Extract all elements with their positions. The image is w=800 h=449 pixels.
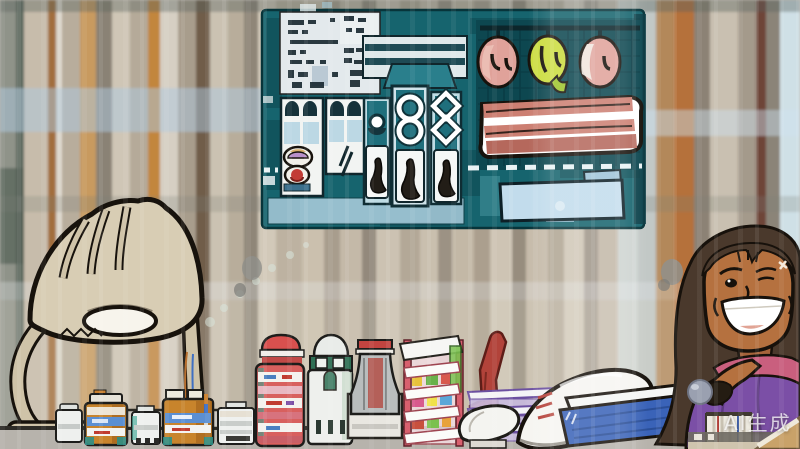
fruit-icon-pink-1 — [478, 37, 518, 87]
vase-bottle — [348, 340, 402, 438]
fruit-icon-pink-2 — [580, 37, 620, 87]
bacon-icon — [480, 97, 641, 157]
illustration-scene: AI生成 — [0, 0, 800, 449]
food-icon-clam — [284, 147, 312, 167]
display-rack — [400, 336, 463, 446]
gray-ball — [688, 380, 712, 404]
board-vending-columns — [363, 36, 467, 206]
small-white-bottle — [218, 402, 254, 444]
menu-board — [262, 2, 646, 228]
food-icon-red-dish — [285, 166, 309, 184]
striped-red-jar — [256, 335, 304, 446]
woman-face — [702, 243, 795, 351]
amber-pill-bottle — [163, 390, 213, 445]
small-white-bottle — [56, 404, 82, 442]
column-ball-icon — [368, 115, 386, 135]
cream-green-bottle — [308, 335, 352, 444]
amber-pill-bottle — [85, 390, 127, 445]
small-white-bottle — [132, 406, 160, 444]
lamp-bulb-lens — [84, 307, 156, 335]
